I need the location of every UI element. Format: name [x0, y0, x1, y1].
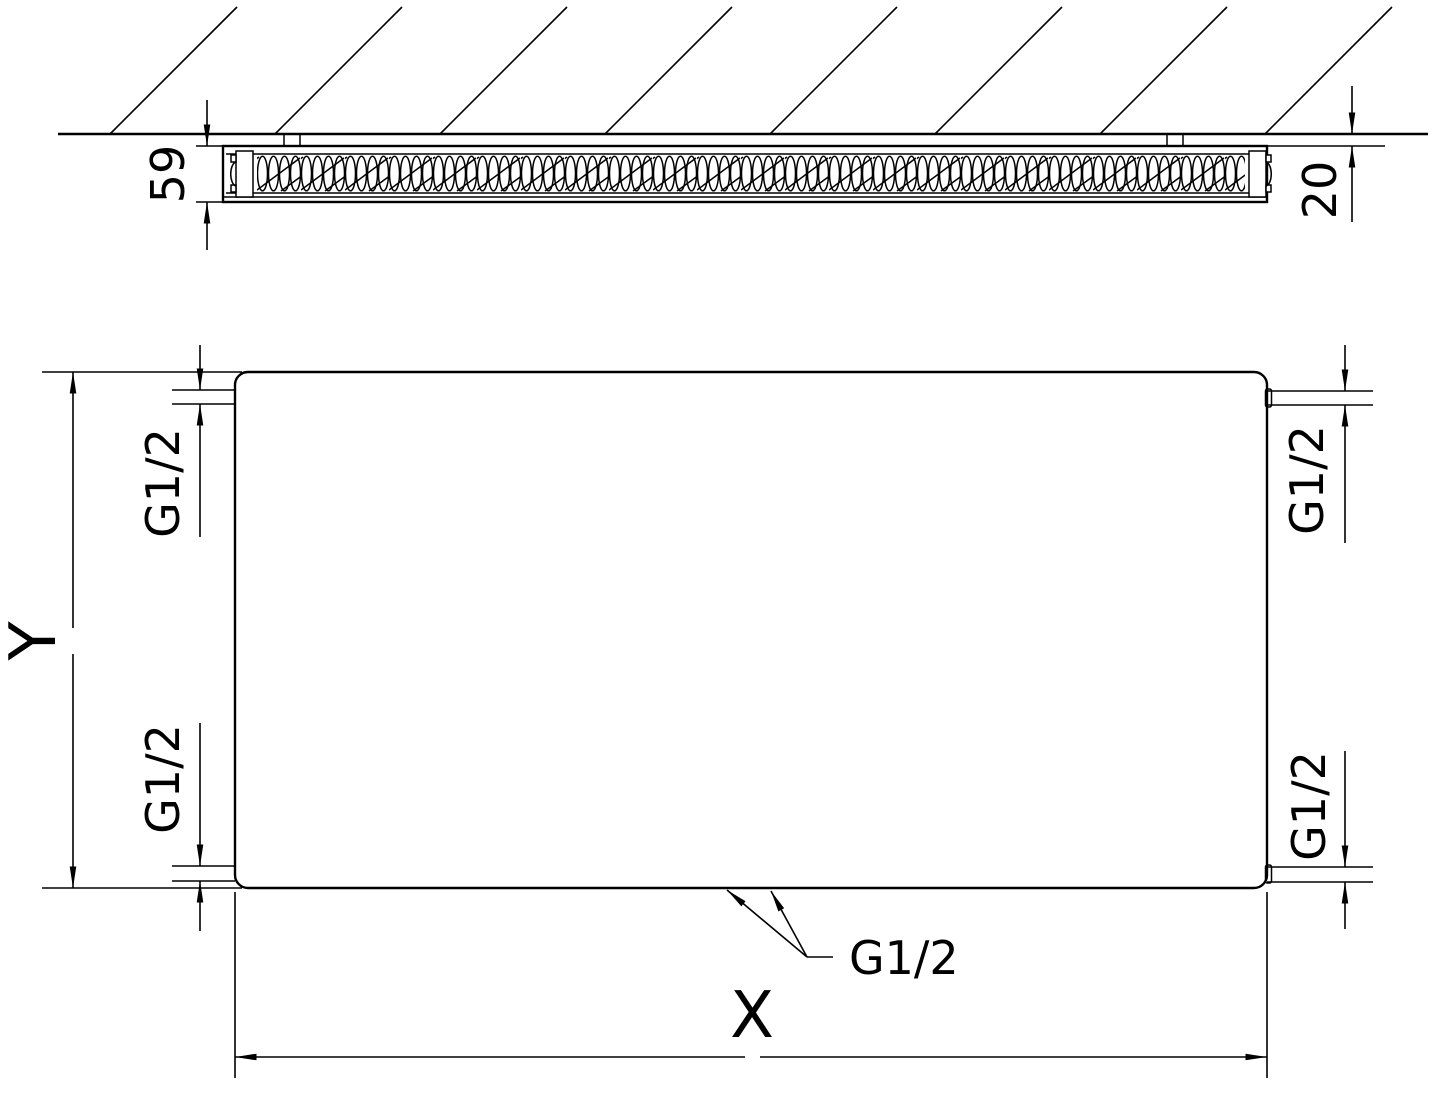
thread-dimension-bottom-right: G1/2 — [1282, 751, 1345, 929]
leader-arrow-2 — [771, 891, 807, 957]
width-dimension: X — [235, 892, 1267, 1078]
stub-bottom-right — [1267, 867, 1373, 882]
wall-section — [58, 7, 1428, 134]
thread-dimension-bottom-left: G1/2 — [136, 723, 200, 931]
thread-dimension-top-right: G1/2 — [1280, 345, 1345, 543]
leader-arrow-1 — [727, 890, 807, 957]
width-dimension-label: X — [730, 979, 774, 1053]
thread-leader-bottom-center: G1/2 — [727, 890, 959, 985]
wall-gap-dimension: 20 — [1267, 86, 1385, 222]
thread-tl-label: G1/2 — [136, 428, 190, 538]
radiator-technical-drawing: 59 20 Y X G1/2 — [0, 0, 1437, 1097]
radiator-front-view — [172, 372, 1373, 888]
wall-hatching — [110, 7, 1392, 134]
thread-bl-label: G1/2 — [136, 724, 190, 834]
stub-top-left — [172, 390, 235, 404]
height-dimension-label: Y — [0, 621, 71, 662]
depth-dimension-label: 59 — [141, 145, 195, 204]
stub-bottom-left — [172, 866, 235, 881]
depth-extension-lines — [196, 146, 224, 202]
depth-dimension: 59 — [141, 100, 224, 250]
thread-bc-label: G1/2 — [849, 931, 959, 985]
height-dimension: Y — [0, 372, 242, 888]
radiator-cross-section — [223, 134, 1271, 202]
radiator-panel — [235, 372, 1267, 888]
convector-fins — [257, 155, 1245, 192]
stub-top-right — [1267, 391, 1373, 405]
wall-bracket-right — [1167, 134, 1183, 146]
thread-br-label: G1/2 — [1282, 751, 1336, 861]
wall-gap-dimension-label: 20 — [1293, 161, 1347, 220]
thread-dimension-top-left: G1/2 — [136, 345, 200, 538]
wall-bracket-left — [284, 134, 300, 146]
thread-tr-label: G1/2 — [1280, 425, 1334, 535]
